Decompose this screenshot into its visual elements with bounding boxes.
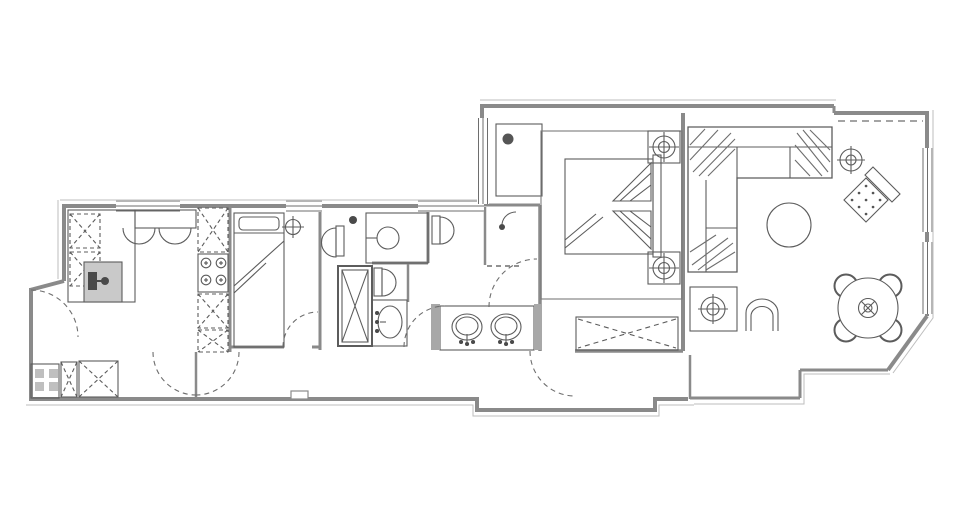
kitchen-sink-basin (88, 272, 97, 290)
floorplan-svg (0, 0, 961, 515)
vanity2-faucet2 (500, 342, 512, 344)
floorplan-canvas (0, 0, 961, 515)
vanity2-faucet1 (461, 342, 473, 344)
shoe-cabinet-hatch4 (49, 382, 58, 391)
toilet3-bowl (440, 217, 454, 244)
toilet1-tank (336, 226, 344, 256)
wall-left-step (30, 281, 64, 290)
sofa-cushion-corner-hatch (690, 129, 735, 176)
door-arc-master (530, 351, 575, 396)
door-arc-corridor-right (196, 352, 239, 395)
bed2-pillow (239, 217, 279, 230)
bed2-blanket-fold2 (234, 263, 266, 293)
master-headboard (653, 155, 661, 257)
kitchen-chair1 (123, 228, 155, 244)
coffee-table (767, 203, 811, 247)
armchair-dots (852, 186, 880, 214)
hob-burner-dots (204, 261, 223, 282)
u-chair-inner (751, 307, 773, 332)
master-closet-knob (503, 134, 514, 145)
master-pillow-bottom (613, 211, 651, 249)
sofa-cushion-bottom-hatch (690, 235, 735, 270)
sofa-cushion-right-hatch (795, 130, 830, 176)
toilet2-tank (374, 268, 382, 296)
master-pillow-top (613, 163, 651, 201)
entry-cabinet-big-cross (79, 361, 118, 397)
toilet3-tank (432, 216, 440, 244)
vanity2-counter (440, 306, 534, 350)
floor-lamp-cross (837, 146, 865, 174)
washing-machine-door (377, 227, 399, 249)
master-closet (496, 124, 542, 196)
door-arc-bedroom2 (283, 312, 318, 347)
vanity2-basin2-inner (495, 317, 517, 335)
shoe-cabinet-hatch1 (35, 369, 44, 378)
entry-cabinet-small (61, 362, 77, 397)
master-bed (565, 159, 653, 254)
bed2-blanket-fold1 (234, 241, 284, 286)
sofa-outline (688, 127, 832, 272)
bed2-ceiling-lamp-cross (282, 216, 304, 238)
armchair-back (865, 167, 900, 202)
master-blanket-fold2 (565, 217, 603, 248)
master-pillow-bottom-lines (620, 211, 651, 239)
shower1-cross (342, 270, 368, 342)
shoe-cabinet-hatch2 (49, 369, 58, 378)
kitchen-column-x2-cross (198, 294, 228, 328)
showerhead-arm (502, 212, 516, 224)
master-bench (576, 317, 678, 350)
wall-bottom-nub (291, 391, 308, 399)
master-pillow-top-lines (620, 173, 651, 201)
door-arc-corridor-left (153, 352, 196, 395)
kitchen-cabinet-x1-cross (70, 214, 100, 248)
side-table-lamp-cross (698, 294, 728, 324)
master-bench-cross (578, 319, 676, 348)
showerhead-dot (499, 224, 505, 230)
kitchen-counter-top (135, 210, 196, 228)
shoe-cabinet-hatch3 (35, 382, 44, 391)
kitchen-faucet-head (101, 277, 109, 285)
floor-drain-dot (349, 216, 357, 224)
kitchen-column-x1-cross (198, 208, 228, 252)
toilet1-bowl (322, 228, 337, 257)
kitchen-chair2 (159, 228, 191, 244)
vanity2-basin1-inner (456, 317, 478, 335)
vanity2-panel-right (534, 304, 542, 350)
entry-cabinet-small-cross (61, 362, 77, 397)
vanity2-panel-left (431, 304, 440, 350)
toilet2-bowl (382, 269, 396, 296)
kitchen-column-x3-cross (198, 330, 228, 352)
door-arc-entry (31, 290, 78, 337)
